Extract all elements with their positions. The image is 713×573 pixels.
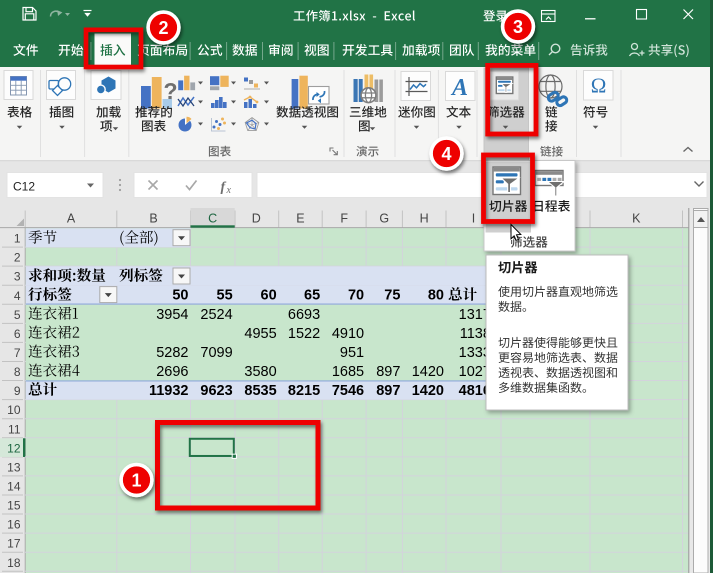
svg-text:3: 3 [513, 17, 523, 37]
svg-text:1: 1 [131, 470, 141, 490]
svg-text:2: 2 [158, 18, 168, 38]
svg-text:4: 4 [441, 144, 451, 164]
